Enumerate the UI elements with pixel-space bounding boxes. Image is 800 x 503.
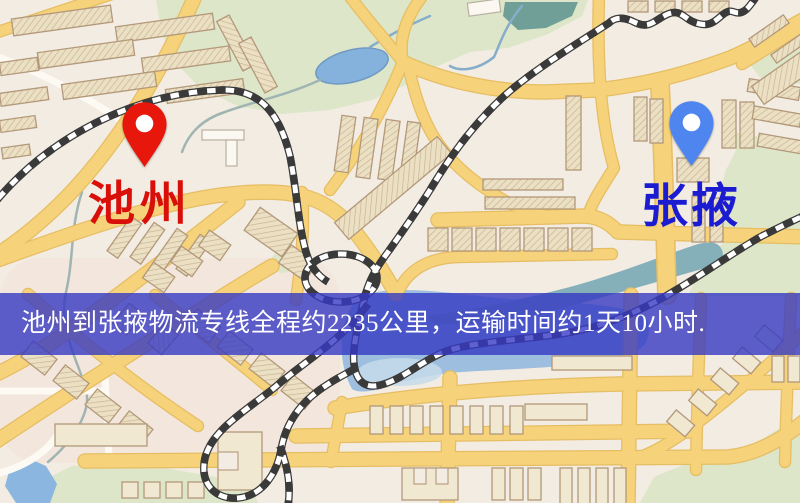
destination-city-label: 张掖 bbox=[641, 184, 741, 231]
route-info-banner: 池州到张掖物流专线全程约2235公里，运输时间约1天10小时. bbox=[0, 293, 800, 355]
route-map: 池州到张掖物流专线全程约2235公里，运输时间约1天10小时. 池州 张掖 bbox=[0, 0, 800, 503]
route-info-text: 池州到张掖物流专线全程约2235公里，运输时间约1天10小时. bbox=[21, 310, 705, 337]
map-artwork bbox=[0, 0, 800, 503]
origin-city-label: 池州 bbox=[88, 182, 192, 229]
origin-pin-icon bbox=[121, 100, 168, 169]
destination-pin-icon bbox=[668, 99, 715, 168]
